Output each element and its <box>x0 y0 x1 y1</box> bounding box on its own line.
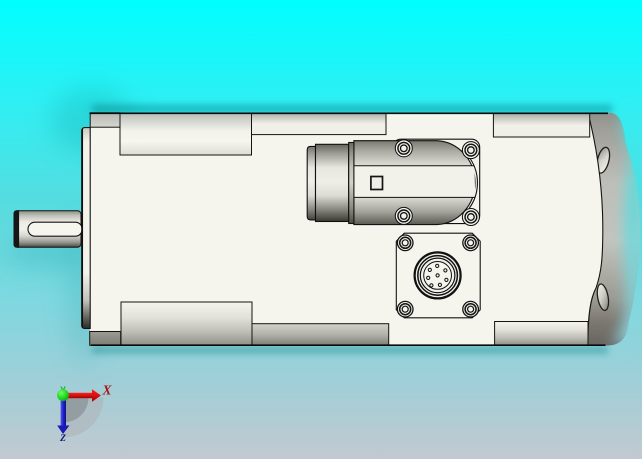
svg-text:Z: Z <box>59 434 66 444</box>
svg-text:X: X <box>101 383 112 398</box>
